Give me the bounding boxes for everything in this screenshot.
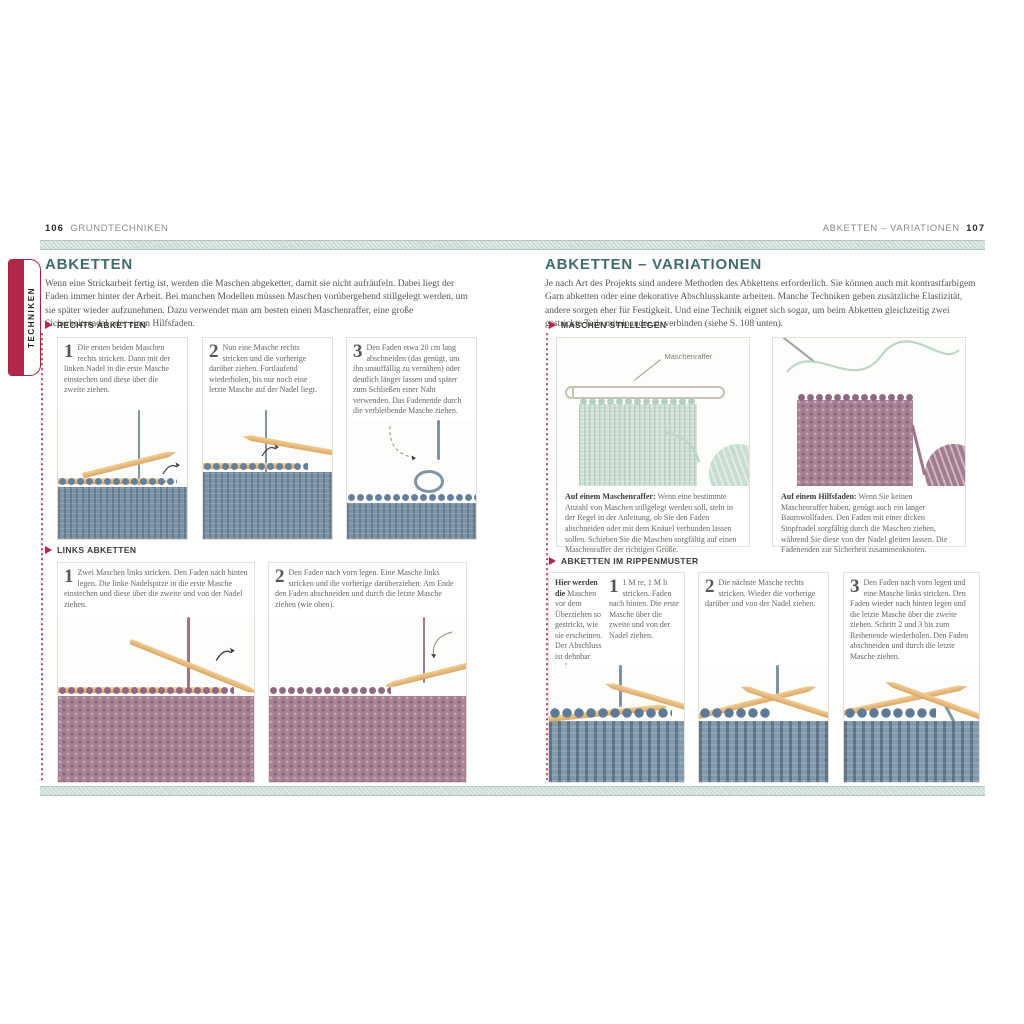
- section-title: LINKS ABKETTEN: [57, 545, 136, 555]
- caption-text: Wenn eine bestimmte Anzahl von Maschen s…: [565, 492, 736, 554]
- knit-swatch: [269, 696, 466, 782]
- photo-label: Maschenraffer: [665, 352, 713, 361]
- page-number-left: 106: [45, 223, 64, 234]
- step-number: 2: [275, 569, 285, 585]
- knit-swatch: [549, 721, 684, 782]
- knit-swatch: [203, 472, 332, 539]
- yarn-strand: [437, 420, 440, 461]
- step-number: 1: [64, 569, 74, 585]
- step-box: 1Die ersten beiden Maschen rechts strick…: [57, 337, 188, 540]
- photo-maschenraffer: Maschenraffer: [557, 338, 749, 486]
- section-header-links-abketten: LINKS ABKETTEN: [45, 545, 136, 555]
- caption: Auf einem Hilfsfaden: Wenn Sie keinen Ma…: [773, 486, 965, 562]
- step-box: 3Den Faden nach vorn legen und eine Masc…: [843, 572, 980, 783]
- page-right: ABKETTEN – VARIATIONEN Je nach Art des P…: [545, 256, 985, 796]
- step-text: 2Den Faden nach vorn legen. Eine Masche …: [269, 563, 466, 617]
- yarn-strand: [663, 430, 703, 464]
- stitch-loops: [699, 707, 770, 719]
- step-body: Den Faden nach vorn legen. Eine Masche l…: [275, 568, 454, 609]
- section-header-maschen-stilllegen: MASCHEN STILLLEGEN: [549, 320, 666, 330]
- page-left: ABKETTEN Wenn eine Strickarbeit fertig i…: [45, 256, 491, 796]
- arrow-icon: [214, 647, 236, 663]
- book-spread: 106 GRUNDTECHNIKEN ABKETTEN – VARIATIONE…: [0, 0, 1024, 1024]
- section-title: RECHTS ABKETTEN: [57, 320, 146, 330]
- photo-rippen-1: [549, 665, 684, 782]
- section-flag-icon: [45, 321, 52, 329]
- step-body: Die nächste Masche rechts stricken. Wied…: [705, 578, 816, 608]
- step-box: 2Den Faden nach vorn legen. Eine Masche …: [268, 562, 467, 783]
- leader-arrow-icon: [386, 424, 436, 464]
- step-text: 3Den Faden nach vorn legen und eine Masc…: [844, 573, 979, 665]
- section-flag-icon: [549, 557, 556, 565]
- step-body: 1 M re, 1 M li stricken. Faden nach hint…: [609, 578, 679, 640]
- knit-swatch: [58, 696, 254, 782]
- running-head-left: 106 GRUNDTECHNIKEN: [45, 223, 168, 234]
- arrow-icon: [161, 462, 181, 476]
- stitch-loops: [58, 686, 234, 695]
- step-box: 3Den Faden etwa 20 cm lang abschneiden (…: [346, 337, 477, 540]
- step-body: Nun eine Masche rechts stricken und die …: [209, 343, 317, 394]
- step-box: 2Die nächste Masche rechts stricken. Wie…: [698, 572, 829, 783]
- yarn-strand: [138, 410, 141, 485]
- step-text: 2Die nächste Masche rechts stricken. Wie…: [699, 573, 828, 665]
- note-text: Hier werden die Maschen vor dem Überzieh…: [549, 573, 605, 665]
- photo-rippen-3: [844, 665, 979, 782]
- section-title: ABKETTEN IM RIPPENMUSTER: [561, 556, 699, 566]
- knitting-needle: [242, 434, 332, 457]
- photo-links-1: [58, 617, 254, 782]
- step-number: 3: [353, 344, 363, 360]
- yarn-ball: [925, 444, 965, 486]
- photo-links-2: [269, 617, 466, 782]
- step-text: 11 M re, 1 M li stricken. Faden nach hin…: [605, 573, 684, 665]
- step-body: Die ersten beiden Maschen rechts stricke…: [64, 343, 170, 394]
- arrow-icon: [260, 444, 280, 458]
- chapter-tab: TECHNIKEN: [8, 259, 41, 376]
- photo-rechts-2: [203, 410, 332, 539]
- knit-swatch: [699, 721, 828, 782]
- yarn-ball: [709, 444, 749, 486]
- step-text-row: Hier werden die Maschen vor dem Überzieh…: [549, 573, 684, 665]
- section-flag-icon: [549, 321, 556, 329]
- photo-hilfsfaden: [773, 338, 965, 486]
- waste-yarn-thread: [773, 338, 965, 398]
- step-body: Zwei Maschen links stricken. Den Faden n…: [64, 568, 248, 609]
- label-leader-line: [633, 359, 660, 381]
- stitch-loops: [58, 477, 177, 486]
- step-text: 1Die ersten beiden Maschen rechts strick…: [58, 338, 187, 410]
- stitch-loops: [269, 686, 391, 695]
- top-rule-band: [40, 240, 985, 250]
- step-number: 2: [705, 579, 715, 595]
- caption-lead: Auf einem Maschenraffer:: [565, 492, 656, 501]
- caption-box: Auf einem Hilfsfaden: Wenn Sie keinen Ma…: [772, 337, 966, 547]
- caption: Auf einem Maschenraffer: Wenn eine besti…: [557, 486, 749, 562]
- step-number: 2: [209, 344, 219, 360]
- arrow-icon: [426, 630, 456, 664]
- stitch-loops: [797, 393, 913, 402]
- knit-swatch: [844, 721, 979, 782]
- step-number: 1: [64, 344, 74, 360]
- section-title: MASCHEN STILLLEGEN: [561, 320, 666, 330]
- stitch-loops: [549, 707, 672, 719]
- step-text: 1Zwei Maschen links stricken. Den Faden …: [58, 563, 254, 617]
- yarn-loop: [414, 470, 444, 493]
- step-text: 3Den Faden etwa 20 cm lang abschneiden (…: [347, 338, 476, 420]
- stitch-loops: [203, 462, 308, 471]
- step-text: 2Nun eine Masche rechts stricken und die…: [203, 338, 332, 410]
- photo-rippen-2: [699, 665, 828, 782]
- step-body: Den Faden nach vorn legen und eine Masch…: [850, 578, 968, 661]
- running-head-right-label: ABKETTEN – VARIATIONEN: [823, 223, 960, 234]
- knit-swatch: [58, 487, 187, 539]
- page-number-right: 107: [966, 223, 985, 234]
- page-title: ABKETTEN: [45, 256, 491, 273]
- knit-swatch: [347, 503, 476, 539]
- step-box: 2Nun eine Masche rechts stricken und die…: [202, 337, 333, 540]
- running-head-right: ABKETTEN – VARIATIONEN 107: [823, 223, 985, 234]
- section-dotted-rule: [41, 333, 43, 783]
- stitch-loops: [579, 397, 697, 406]
- caption-lead: Auf einem Hilfsfaden:: [781, 492, 857, 501]
- stitch-loops: [844, 707, 936, 719]
- section-header-abketten-im-rippenmuster: ABKETTEN IM RIPPENMUSTER: [549, 556, 699, 566]
- step-box: 1Zwei Maschen links stricken. Den Faden …: [57, 562, 255, 783]
- knit-swatch: [797, 400, 913, 486]
- running-head-left-label: GRUNDTECHNIKEN: [70, 223, 168, 234]
- photo-rechts-3: [347, 420, 476, 539]
- step-number: 3: [850, 579, 860, 595]
- section-header-rechts-abketten: RECHTS ABKETTEN: [45, 320, 146, 330]
- section-flag-icon: [45, 546, 52, 554]
- page-title: ABKETTEN – VARIATIONEN: [545, 256, 985, 273]
- caption-text: Wenn Sie keinen Maschenraffer haben, gen…: [781, 492, 947, 554]
- step-body: Den Faden etwa 20 cm lang abschneiden (d…: [353, 343, 461, 415]
- photo-rechts-1: [58, 410, 187, 539]
- chapter-tab-label: TECHNIKEN: [24, 260, 39, 375]
- caption-box: Maschenraffer Auf einem Maschenraffer: W…: [556, 337, 750, 547]
- chapter-tab-color-bar: [9, 260, 24, 375]
- step-number: 1: [609, 579, 619, 595]
- stitch-loops: [347, 493, 476, 502]
- yarn-strand: [187, 617, 190, 693]
- step-box: Hier werden die Maschen vor dem Überzieh…: [548, 572, 685, 783]
